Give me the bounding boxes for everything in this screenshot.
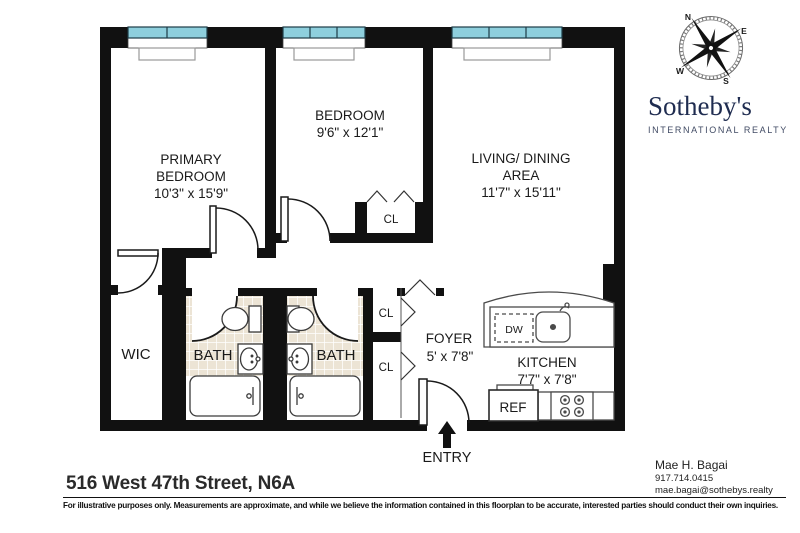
entry-arrow-icon <box>438 421 456 448</box>
kitchen-dims: 7'7" x 7'8" <box>517 372 576 387</box>
windows <box>128 27 562 60</box>
living-dining-dims: 11'7" x 15'11" <box>481 185 561 200</box>
compass-icon: N E W S <box>661 0 761 98</box>
bath1-label: BATH <box>194 347 233 364</box>
bathtub-icon <box>190 376 260 416</box>
foyer-dims: 5' x 7'8" <box>427 349 474 364</box>
bath2-label: BATH <box>317 347 356 364</box>
closet-hall2-label: CL <box>379 362 394 374</box>
floorplan-drawing: N E W S PRIMARY BEDROOM 10'3" x 15'9" BE… <box>0 0 800 533</box>
dishwasher-label: DW <box>505 324 523 336</box>
agent-email: mae.bagai@sothebys.realty <box>655 485 773 496</box>
wic-label: WIC <box>121 346 150 363</box>
footer-divider <box>63 497 786 498</box>
bedroom-dims: 9'6" x 12'1" <box>317 125 384 140</box>
radiators <box>139 48 550 60</box>
compass-w-label: W <box>676 66 685 76</box>
brand-block: Sotheby's INTERNATIONAL REALTY <box>648 93 798 135</box>
agent-block: Mae H. Bagai 917.714.0415 mae.bagai@soth… <box>655 458 773 496</box>
primary-bedroom-dims: 10'3" x 15'9" <box>154 186 228 201</box>
closet-hall1-label: CL <box>379 308 394 320</box>
compass-n-label: N <box>685 12 691 22</box>
living-dining-label: LIVING/ DINING <box>471 151 570 166</box>
sink-icon <box>287 344 312 374</box>
refrigerator-label: REF <box>500 400 527 415</box>
window-glass <box>128 27 562 38</box>
agent-phone: 917.714.0415 <box>655 473 773 484</box>
compass-s-label: S <box>723 76 729 86</box>
living-dining-label2: AREA <box>503 168 540 183</box>
closet-bedroom-label: CL <box>384 214 399 226</box>
toilet-icon <box>222 306 261 332</box>
foyer-label: FOYER <box>426 331 473 346</box>
agent-name: Mae H. Bagai <box>655 458 773 472</box>
compass-e-label: E <box>741 26 747 36</box>
property-address: 516 West 47th Street, N6A <box>66 473 295 495</box>
toilet-icon <box>287 306 314 332</box>
sothebys-tagline: INTERNATIONAL REALTY <box>648 125 798 135</box>
floorplan-page: N E W S PRIMARY BEDROOM 10'3" x 15'9" BE… <box>0 0 800 533</box>
sink-icon <box>238 344 263 374</box>
primary-bedroom-label: PRIMARY <box>160 152 221 167</box>
kitchen-label: KITCHEN <box>517 355 576 370</box>
primary-bedroom-label2: BEDROOM <box>156 169 226 184</box>
disclaimer-text: For illustrative purposes only. Measurem… <box>63 501 789 510</box>
sothebys-logo: Sotheby's <box>648 93 798 120</box>
bedroom-label: BEDROOM <box>315 108 385 123</box>
bathtub-icon <box>290 376 360 416</box>
stove-icon <box>551 392 593 420</box>
entry-label: ENTRY <box>423 450 472 466</box>
